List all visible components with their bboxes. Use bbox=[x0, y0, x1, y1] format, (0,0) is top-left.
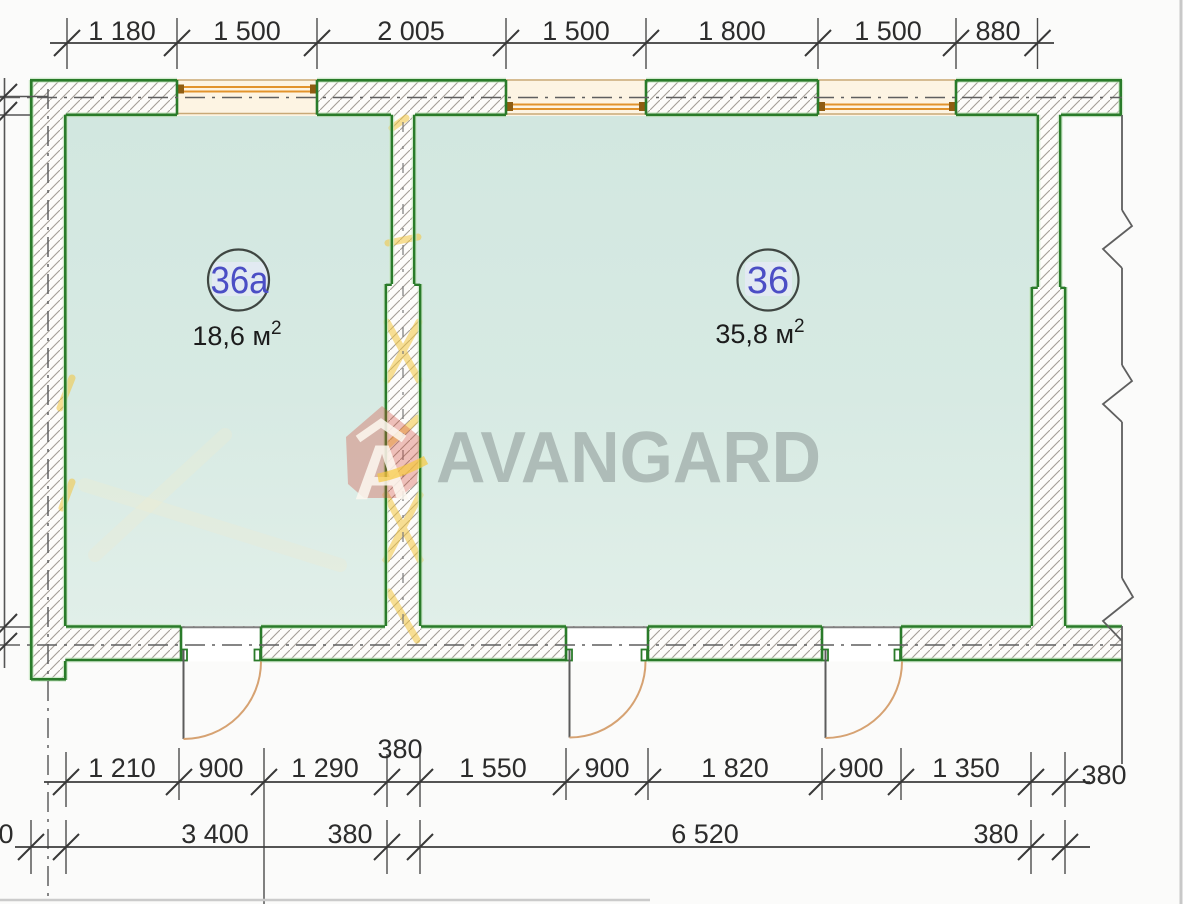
svg-text:1 500: 1 500 bbox=[213, 16, 281, 46]
svg-text:900: 900 bbox=[584, 753, 629, 783]
svg-text:1 290: 1 290 bbox=[291, 753, 359, 783]
svg-text:380: 380 bbox=[377, 734, 422, 764]
svg-text:1 800: 1 800 bbox=[698, 16, 766, 46]
svg-text:3 400: 3 400 bbox=[181, 819, 249, 849]
svg-text:AVANGARD: AVANGARD bbox=[436, 418, 821, 498]
svg-text:380: 380 bbox=[1081, 760, 1126, 790]
svg-text:6 520: 6 520 bbox=[671, 819, 739, 849]
svg-text:18,6 м2: 18,6 м2 bbox=[192, 318, 281, 351]
svg-text:880: 880 bbox=[975, 16, 1020, 46]
svg-text:35,8 м2: 35,8 м2 bbox=[715, 316, 804, 349]
svg-text:1 550: 1 550 bbox=[459, 753, 527, 783]
svg-text:36: 36 bbox=[747, 260, 789, 302]
svg-text:380: 380 bbox=[973, 819, 1018, 849]
svg-text:1 180: 1 180 bbox=[88, 16, 156, 46]
svg-text:1 500: 1 500 bbox=[854, 16, 922, 46]
svg-text:900: 900 bbox=[838, 753, 883, 783]
svg-text:380: 380 bbox=[327, 819, 372, 849]
svg-text:36а: 36а bbox=[211, 260, 270, 302]
svg-text:0: 0 bbox=[0, 819, 14, 849]
svg-text:1 500: 1 500 bbox=[542, 16, 610, 46]
svg-text:900: 900 bbox=[198, 753, 243, 783]
svg-text:2 005: 2 005 bbox=[377, 16, 445, 46]
svg-text:1 350: 1 350 bbox=[932, 753, 1000, 783]
svg-text:1 820: 1 820 bbox=[701, 753, 769, 783]
svg-text:1 210: 1 210 bbox=[88, 753, 156, 783]
